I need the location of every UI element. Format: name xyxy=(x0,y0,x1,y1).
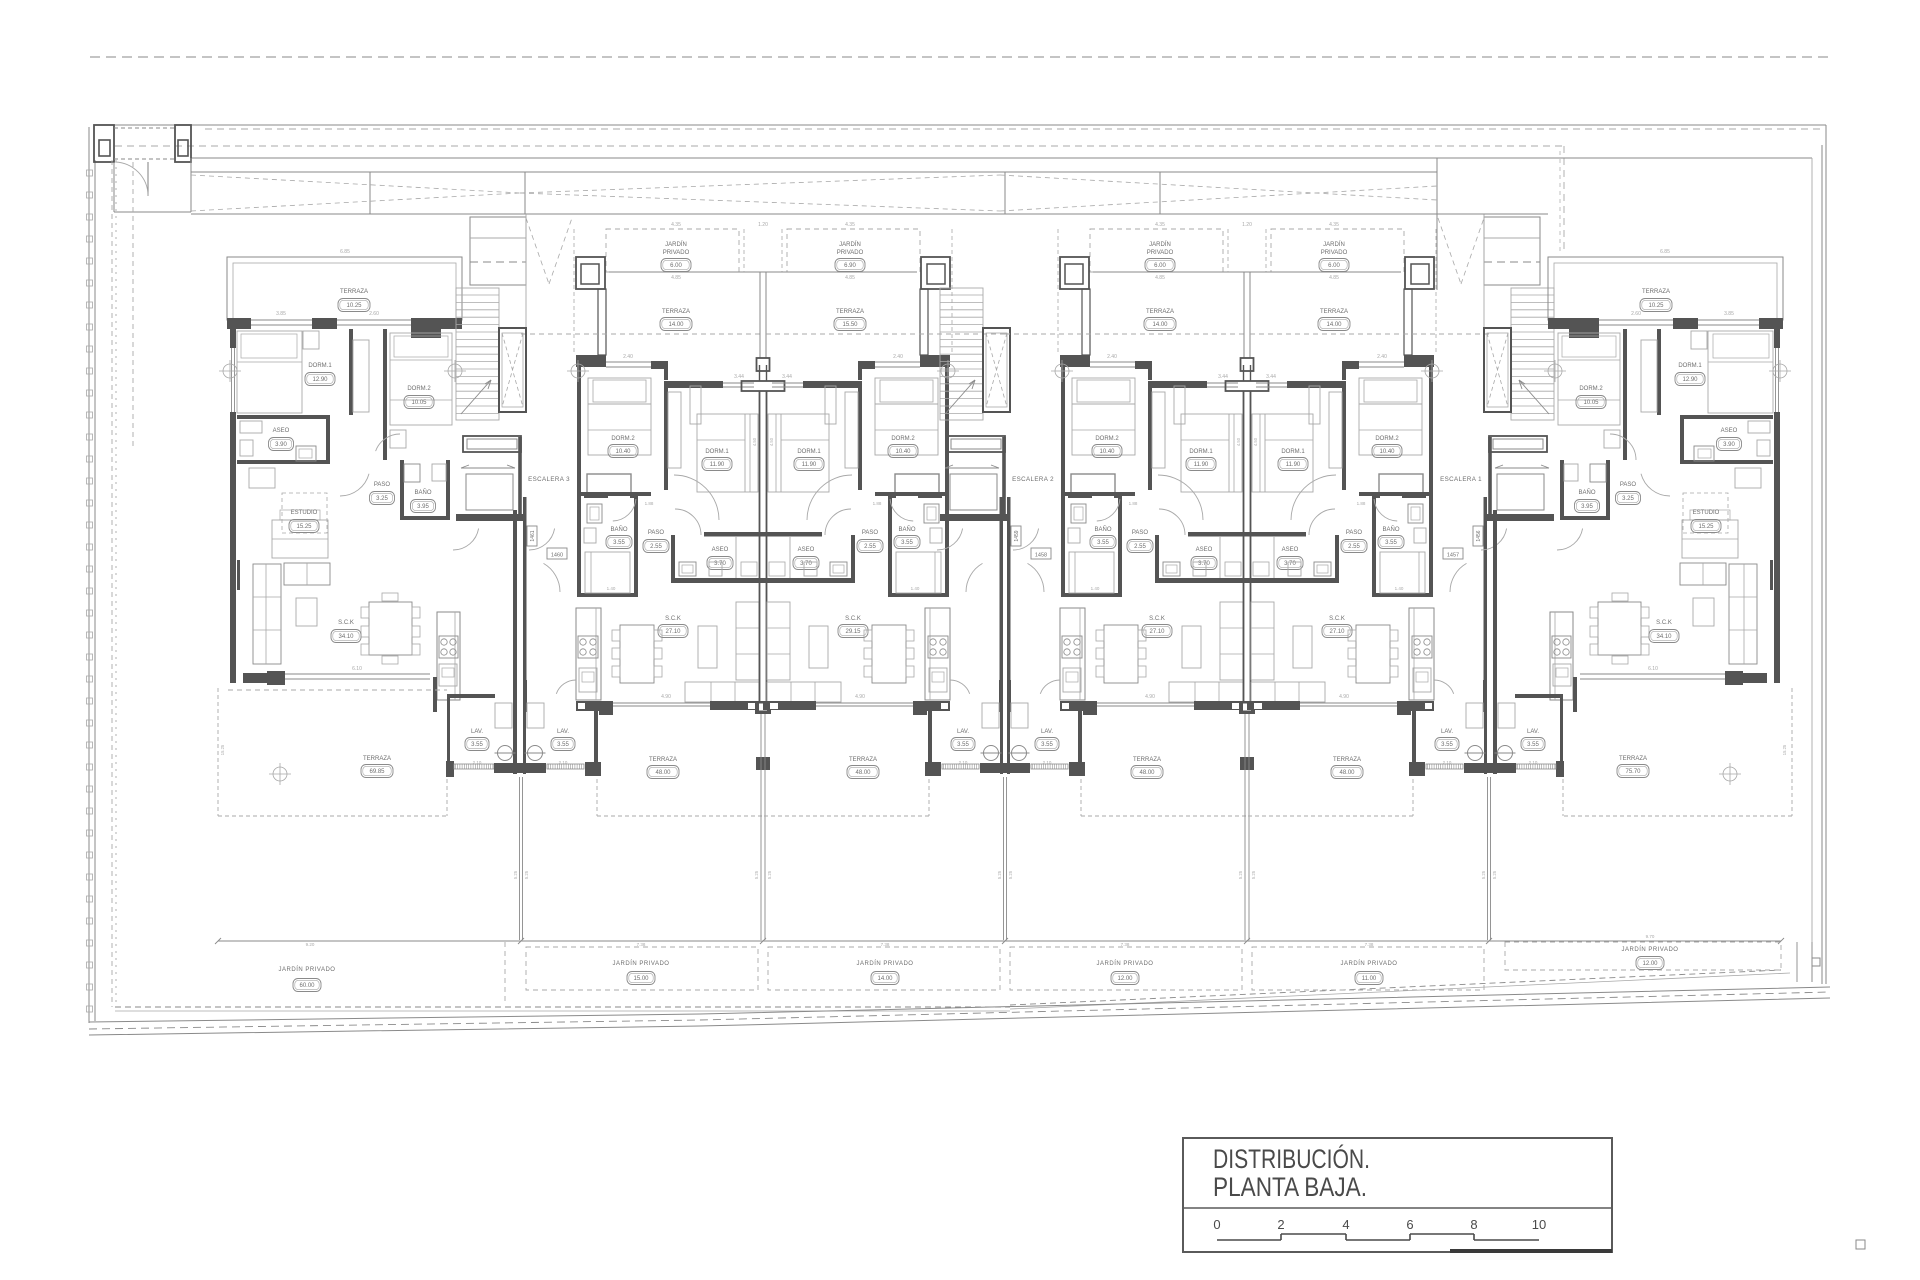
svg-text:BAÑO: BAÑO xyxy=(414,489,431,496)
svg-text:3.55: 3.55 xyxy=(613,540,625,546)
svg-text:7.38: 7.38 xyxy=(881,942,890,947)
svg-text:11.90: 11.90 xyxy=(802,462,817,468)
svg-text:3.55: 3.55 xyxy=(901,540,913,546)
svg-text:TERRAZA: TERRAZA xyxy=(363,756,391,762)
svg-text:LAV.: LAV. xyxy=(557,729,569,735)
svg-text:1.40: 1.40 xyxy=(911,586,920,591)
svg-text:15.25: 15.25 xyxy=(1698,524,1714,530)
svg-text:ASEO: ASEO xyxy=(712,547,729,553)
svg-text:DORM.2: DORM.2 xyxy=(1095,436,1119,442)
svg-text:LAV.: LAV. xyxy=(1041,729,1053,735)
svg-text:5.25: 5.25 xyxy=(1481,870,1486,879)
svg-text:14.00: 14.00 xyxy=(1326,322,1342,328)
svg-text:4.50: 4.50 xyxy=(769,437,774,446)
svg-text:DISTRIBUCIÓN.: DISTRIBUCIÓN. xyxy=(1213,1143,1370,1174)
svg-text:4: 4 xyxy=(1342,1217,1349,1232)
svg-text:3.44: 3.44 xyxy=(1266,374,1276,380)
svg-text:1.40: 1.40 xyxy=(1395,586,1404,591)
svg-text:DORM.1: DORM.1 xyxy=(1678,363,1702,369)
svg-text:11.90: 11.90 xyxy=(1286,462,1301,468)
svg-text:BAÑO: BAÑO xyxy=(1094,526,1111,533)
svg-text:6.85: 6.85 xyxy=(340,249,350,255)
svg-text:10.25: 10.25 xyxy=(346,303,362,309)
svg-text:3.44: 3.44 xyxy=(1218,374,1228,380)
svg-text:10: 10 xyxy=(1532,1217,1546,1232)
svg-text:JARDÍN: JARDÍN xyxy=(839,241,861,248)
svg-text:10.40: 10.40 xyxy=(1099,449,1115,455)
svg-text:6.00: 6.00 xyxy=(1328,263,1340,269)
svg-text:3.55: 3.55 xyxy=(557,742,569,748)
svg-text:4.90: 4.90 xyxy=(1145,694,1155,700)
svg-text:ESTUDIO: ESTUDIO xyxy=(1693,510,1720,516)
svg-text:PRIVADO: PRIVADO xyxy=(1321,250,1348,256)
svg-text:5.25: 5.25 xyxy=(1008,870,1013,879)
svg-text:ASEO: ASEO xyxy=(1196,547,1213,553)
svg-text:9.20: 9.20 xyxy=(306,942,315,947)
svg-text:DORM.2: DORM.2 xyxy=(1375,436,1399,442)
svg-text:3.55: 3.55 xyxy=(1041,742,1053,748)
svg-text:5.25: 5.25 xyxy=(1238,870,1243,879)
svg-text:48.00: 48.00 xyxy=(1139,770,1155,776)
svg-text:S.C.K: S.C.K xyxy=(1329,616,1345,622)
svg-text:48.00: 48.00 xyxy=(855,770,871,776)
svg-text:27.10: 27.10 xyxy=(1149,629,1165,635)
svg-text:DORM.1: DORM.1 xyxy=(705,449,729,455)
svg-text:BAÑO: BAÑO xyxy=(610,526,627,533)
svg-text:10.40: 10.40 xyxy=(1379,449,1395,455)
svg-text:1456: 1456 xyxy=(1476,530,1482,541)
svg-text:TERRAZA: TERRAZA xyxy=(1642,289,1670,295)
svg-text:6: 6 xyxy=(1406,1217,1413,1232)
svg-text:JARDÍN PRIVADO: JARDÍN PRIVADO xyxy=(1341,960,1398,967)
svg-text:TERRAZA: TERRAZA xyxy=(1320,309,1348,315)
svg-text:LAV.: LAV. xyxy=(471,729,483,735)
svg-text:PASO: PASO xyxy=(648,530,665,536)
svg-text:4.85: 4.85 xyxy=(845,275,855,281)
svg-text:0: 0 xyxy=(1213,1217,1220,1232)
svg-text:11.90: 11.90 xyxy=(710,462,725,468)
svg-text:TERRAZA: TERRAZA xyxy=(662,309,690,315)
svg-text:15.25: 15.25 xyxy=(220,744,225,755)
svg-text:69.85: 69.85 xyxy=(369,769,385,775)
svg-text:ESCALERA 2: ESCALERA 2 xyxy=(1012,476,1054,483)
svg-text:4.90: 4.90 xyxy=(661,694,671,700)
svg-text:DORM.2: DORM.2 xyxy=(611,436,635,442)
svg-text:PASO: PASO xyxy=(862,530,879,536)
svg-text:PRIVADO: PRIVADO xyxy=(1147,250,1174,256)
svg-text:DORM.2: DORM.2 xyxy=(1579,386,1603,392)
svg-text:10.25: 10.25 xyxy=(1648,303,1664,309)
svg-text:3.95: 3.95 xyxy=(1581,504,1593,510)
svg-text:JARDÍN PRIVADO: JARDÍN PRIVADO xyxy=(857,960,914,967)
svg-text:11.00: 11.00 xyxy=(1362,976,1377,982)
svg-text:LAV.: LAV. xyxy=(957,729,969,735)
svg-text:34.10: 34.10 xyxy=(1656,634,1672,640)
svg-text:PASO: PASO xyxy=(1620,482,1637,488)
svg-text:14.00: 14.00 xyxy=(877,976,893,982)
svg-text:12.90: 12.90 xyxy=(312,377,328,383)
svg-text:TERRAZA: TERRAZA xyxy=(1333,757,1361,763)
svg-text:5.25: 5.25 xyxy=(524,870,529,879)
svg-text:6.10: 6.10 xyxy=(1648,666,1658,672)
svg-text:12.00: 12.00 xyxy=(1117,976,1133,982)
svg-text:S.C.K: S.C.K xyxy=(665,616,681,622)
svg-text:PASO: PASO xyxy=(1346,530,1363,536)
svg-text:7.38: 7.38 xyxy=(1365,942,1374,947)
svg-text:3.44: 3.44 xyxy=(734,374,744,380)
svg-text:4.35: 4.35 xyxy=(845,222,855,228)
svg-text:PASO: PASO xyxy=(1132,530,1149,536)
svg-text:5.25: 5.25 xyxy=(513,870,518,879)
svg-text:29.15: 29.15 xyxy=(845,629,861,635)
svg-text:1458: 1458 xyxy=(1035,553,1047,559)
svg-text:1.88: 1.88 xyxy=(645,501,654,506)
svg-text:75.70: 75.70 xyxy=(1625,769,1641,775)
svg-text:15.25: 15.25 xyxy=(296,524,312,530)
svg-text:TERRAZA: TERRAZA xyxy=(1146,309,1174,315)
svg-text:4.35: 4.35 xyxy=(671,222,681,228)
svg-text:TERRAZA: TERRAZA xyxy=(836,309,864,315)
svg-text:27.10: 27.10 xyxy=(1329,629,1345,635)
svg-text:JARDÍN PRIVADO: JARDÍN PRIVADO xyxy=(1097,960,1154,967)
svg-text:10.05: 10.05 xyxy=(411,400,427,406)
svg-text:1.40: 1.40 xyxy=(1091,586,1100,591)
svg-text:S.C.K: S.C.K xyxy=(338,620,354,626)
svg-text:JARDÍN: JARDÍN xyxy=(1149,241,1171,248)
svg-text:S.C.K: S.C.K xyxy=(1656,620,1672,626)
svg-text:DORM.1: DORM.1 xyxy=(797,449,821,455)
svg-text:5.25: 5.25 xyxy=(1492,870,1497,879)
svg-text:4.90: 4.90 xyxy=(1339,694,1349,700)
svg-text:14.00: 14.00 xyxy=(668,322,684,328)
svg-text:2.40: 2.40 xyxy=(1377,354,1387,360)
svg-text:3.25: 3.25 xyxy=(1622,496,1634,502)
svg-text:1459: 1459 xyxy=(1014,530,1020,541)
svg-text:2.40: 2.40 xyxy=(893,354,903,360)
svg-text:TERRAZA: TERRAZA xyxy=(1133,757,1161,763)
svg-text:1.20: 1.20 xyxy=(1242,222,1252,228)
svg-text:2.60: 2.60 xyxy=(1631,311,1641,317)
svg-text:ASEO: ASEO xyxy=(273,428,290,434)
svg-text:DORM.1: DORM.1 xyxy=(1189,449,1213,455)
svg-text:ESCALERA 3: ESCALERA 3 xyxy=(528,476,570,483)
svg-text:9.70: 9.70 xyxy=(1646,934,1655,939)
svg-text:2.55: 2.55 xyxy=(864,544,876,550)
svg-text:4.85: 4.85 xyxy=(671,275,681,281)
svg-text:5.25: 5.25 xyxy=(997,870,1002,879)
svg-text:4.90: 4.90 xyxy=(855,694,865,700)
svg-text:4.50: 4.50 xyxy=(752,437,757,446)
svg-text:10.40: 10.40 xyxy=(615,449,631,455)
svg-text:3.95: 3.95 xyxy=(417,504,429,510)
svg-text:TERRAZA: TERRAZA xyxy=(340,289,368,295)
svg-text:7.38: 7.38 xyxy=(1121,942,1130,947)
svg-text:2.55: 2.55 xyxy=(650,544,662,550)
svg-text:3.55: 3.55 xyxy=(471,742,483,748)
svg-text:ASEO: ASEO xyxy=(1721,428,1738,434)
svg-text:3.90: 3.90 xyxy=(1723,442,1735,448)
svg-text:48.00: 48.00 xyxy=(655,770,671,776)
svg-text:14.00: 14.00 xyxy=(1152,322,1168,328)
svg-text:TERRAZA: TERRAZA xyxy=(849,757,877,763)
svg-text:48.00: 48.00 xyxy=(1339,770,1355,776)
svg-text:3.90: 3.90 xyxy=(275,442,287,448)
svg-text:3.55: 3.55 xyxy=(1527,742,1539,748)
svg-text:1.40: 1.40 xyxy=(607,586,616,591)
svg-text:PRIVADO: PRIVADO xyxy=(663,250,690,256)
svg-text:DORM.2: DORM.2 xyxy=(891,436,915,442)
svg-text:4.35: 4.35 xyxy=(1155,222,1165,228)
svg-text:3.55: 3.55 xyxy=(1385,540,1397,546)
svg-text:12.90: 12.90 xyxy=(1682,377,1698,383)
svg-text:60.00: 60.00 xyxy=(299,983,315,989)
svg-text:15.00: 15.00 xyxy=(633,976,649,982)
svg-text:ESTUDIO: ESTUDIO xyxy=(291,510,318,516)
svg-text:4.85: 4.85 xyxy=(1329,275,1339,281)
svg-text:8: 8 xyxy=(1470,1217,1477,1232)
svg-text:2.55: 2.55 xyxy=(1348,544,1360,550)
svg-text:JARDÍN: JARDÍN xyxy=(665,241,687,248)
svg-text:BAÑO: BAÑO xyxy=(1382,526,1399,533)
svg-text:7.38: 7.38 xyxy=(637,942,646,947)
svg-text:LAV.: LAV. xyxy=(1441,729,1453,735)
svg-text:5.25: 5.25 xyxy=(767,870,772,879)
svg-text:4.50: 4.50 xyxy=(1253,437,1258,446)
svg-text:27.10: 27.10 xyxy=(665,629,681,635)
svg-text:2.40: 2.40 xyxy=(623,354,633,360)
svg-text:3.44: 3.44 xyxy=(782,374,792,380)
svg-text:3.55: 3.55 xyxy=(1441,742,1453,748)
svg-text:JARDÍN PRIVADO: JARDÍN PRIVADO xyxy=(279,966,336,973)
svg-text:4.35: 4.35 xyxy=(1329,222,1339,228)
svg-text:6.10: 6.10 xyxy=(352,666,362,672)
svg-text:2: 2 xyxy=(1277,1217,1284,1232)
svg-text:3.25: 3.25 xyxy=(376,496,388,502)
svg-text:DORM.2: DORM.2 xyxy=(407,386,431,392)
svg-text:1457: 1457 xyxy=(1447,553,1459,559)
svg-text:6.85: 6.85 xyxy=(1660,249,1670,255)
svg-text:3.85: 3.85 xyxy=(276,311,286,317)
svg-text:34.10: 34.10 xyxy=(338,634,354,640)
svg-text:PRIVADO: PRIVADO xyxy=(837,250,864,256)
svg-text:12.00: 12.00 xyxy=(1642,961,1658,967)
svg-text:PASO: PASO xyxy=(374,482,391,488)
svg-text:JARDÍN PRIVADO: JARDÍN PRIVADO xyxy=(1622,946,1679,953)
svg-text:10.40: 10.40 xyxy=(895,449,911,455)
svg-text:15.50: 15.50 xyxy=(842,322,858,328)
svg-text:5.25: 5.25 xyxy=(1251,870,1256,879)
svg-text:1.20: 1.20 xyxy=(758,222,768,228)
svg-text:3.85: 3.85 xyxy=(1724,311,1734,317)
svg-text:1.88: 1.88 xyxy=(1357,501,1366,506)
svg-text:DORM.1: DORM.1 xyxy=(1281,449,1305,455)
svg-text:2.55: 2.55 xyxy=(1134,544,1146,550)
svg-text:1460: 1460 xyxy=(551,553,563,559)
svg-text:1.88: 1.88 xyxy=(873,501,882,506)
svg-text:6.90: 6.90 xyxy=(844,263,856,269)
svg-text:1461: 1461 xyxy=(530,530,536,541)
svg-text:S.C.K: S.C.K xyxy=(845,616,861,622)
svg-text:S.C.K: S.C.K xyxy=(1149,616,1165,622)
svg-text:2.60: 2.60 xyxy=(369,311,379,317)
svg-text:15.25: 15.25 xyxy=(1782,744,1787,755)
svg-text:5.25: 5.25 xyxy=(754,870,759,879)
svg-text:11.90: 11.90 xyxy=(1194,462,1209,468)
svg-text:TERRAZA: TERRAZA xyxy=(1619,756,1647,762)
svg-text:BAÑO: BAÑO xyxy=(898,526,915,533)
svg-text:6.00: 6.00 xyxy=(1154,263,1166,269)
svg-text:6.00: 6.00 xyxy=(670,263,682,269)
svg-text:PLANTA BAJA.: PLANTA BAJA. xyxy=(1213,1172,1367,1202)
svg-text:DORM.1: DORM.1 xyxy=(308,363,332,369)
svg-text:ESCALERA 1: ESCALERA 1 xyxy=(1440,476,1482,483)
svg-text:JARDÍN PRIVADO: JARDÍN PRIVADO xyxy=(613,960,670,967)
svg-text:BAÑO: BAÑO xyxy=(1578,489,1595,496)
svg-text:ASEO: ASEO xyxy=(798,547,815,553)
svg-text:10.05: 10.05 xyxy=(1583,400,1599,406)
svg-text:4.85: 4.85 xyxy=(1155,275,1165,281)
svg-text:JARDÍN: JARDÍN xyxy=(1323,241,1345,248)
svg-text:LAV.: LAV. xyxy=(1527,729,1539,735)
svg-text:TERRAZA: TERRAZA xyxy=(649,757,677,763)
svg-text:2.40: 2.40 xyxy=(1107,354,1117,360)
svg-text:3.55: 3.55 xyxy=(1097,540,1109,546)
svg-text:3.55: 3.55 xyxy=(957,742,969,748)
svg-text:1.88: 1.88 xyxy=(1129,501,1138,506)
svg-text:ASEO: ASEO xyxy=(1282,547,1299,553)
svg-text:4.50: 4.50 xyxy=(1236,437,1241,446)
